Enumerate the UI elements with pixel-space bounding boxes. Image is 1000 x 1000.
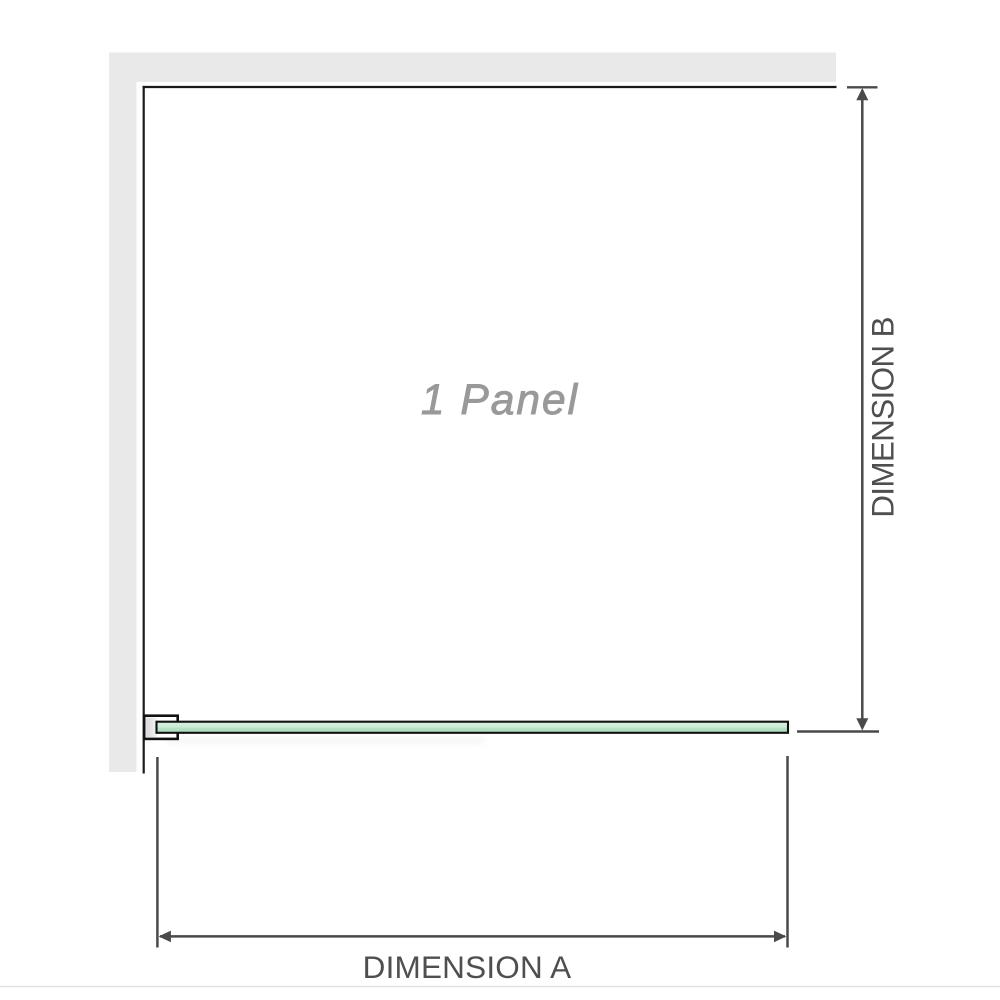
svg-text:DIMENSION B: DIMENSION B (865, 317, 901, 518)
svg-text:1 Panel: 1 Panel (421, 377, 579, 424)
svg-text:DIMENSION A: DIMENSION A (363, 949, 572, 985)
